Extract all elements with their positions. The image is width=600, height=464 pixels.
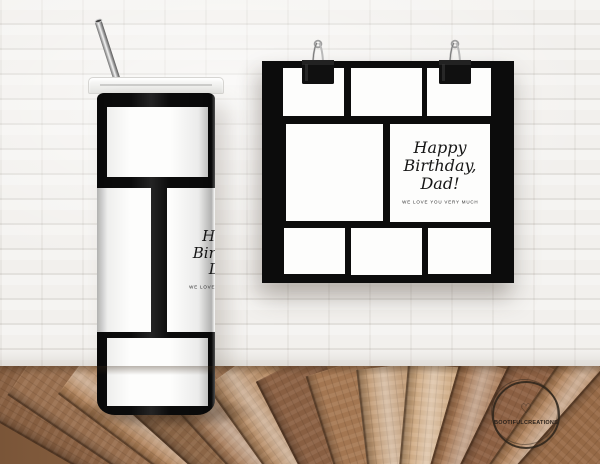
photo-slot xyxy=(286,124,383,221)
mockup-scene: Happy Birthday, Dad! WE LOVE YOU VERY MU… xyxy=(0,0,600,464)
brand-name: BOOTIFULCREATIONS xyxy=(494,419,558,425)
greeting-line: Birthday, xyxy=(193,245,215,262)
collage-print: Happy Birthday, Dad! WE LOVE YOU VERY MU… xyxy=(262,61,514,283)
greeting-line: Happy xyxy=(202,228,215,245)
greeting-caption: WE LOVE YOU VERY MUCH xyxy=(402,199,478,204)
greeting-panel: Happy Birthday, Dad! WE LOVE YOU VERY MU… xyxy=(167,188,215,332)
greeting-line: Dad! xyxy=(420,175,459,193)
binder-clip-icon xyxy=(301,36,335,86)
photo-slot xyxy=(284,228,345,274)
greeting-panel: Happy Birthday, Dad! WE LOVE YOU VERY MU… xyxy=(390,124,490,222)
panel-divider xyxy=(151,188,167,332)
brand-watermark: ♡ BOOTIFULCREATIONS xyxy=(492,381,560,449)
greeting-line: Happy xyxy=(413,139,466,157)
photo-slot xyxy=(351,68,422,116)
greeting-caption: WE LOVE YOU VERY MUCH xyxy=(189,285,215,290)
binder-clip-icon xyxy=(438,36,472,86)
tumbler-middle-panel: Happy Birthday, Dad! WE LOVE YOU VERY MU… xyxy=(97,188,215,332)
greeting-line: Birthday, xyxy=(403,157,476,175)
tumbler-lid xyxy=(88,77,224,94)
photo-slot xyxy=(107,107,208,177)
heart-icon: ♡ xyxy=(520,403,532,416)
photo-slot xyxy=(351,228,422,275)
floor-top-shadow xyxy=(0,366,600,375)
wall-base-shadow xyxy=(0,347,600,367)
photo-slot xyxy=(428,228,491,274)
greeting-line: Dad! xyxy=(209,261,215,278)
